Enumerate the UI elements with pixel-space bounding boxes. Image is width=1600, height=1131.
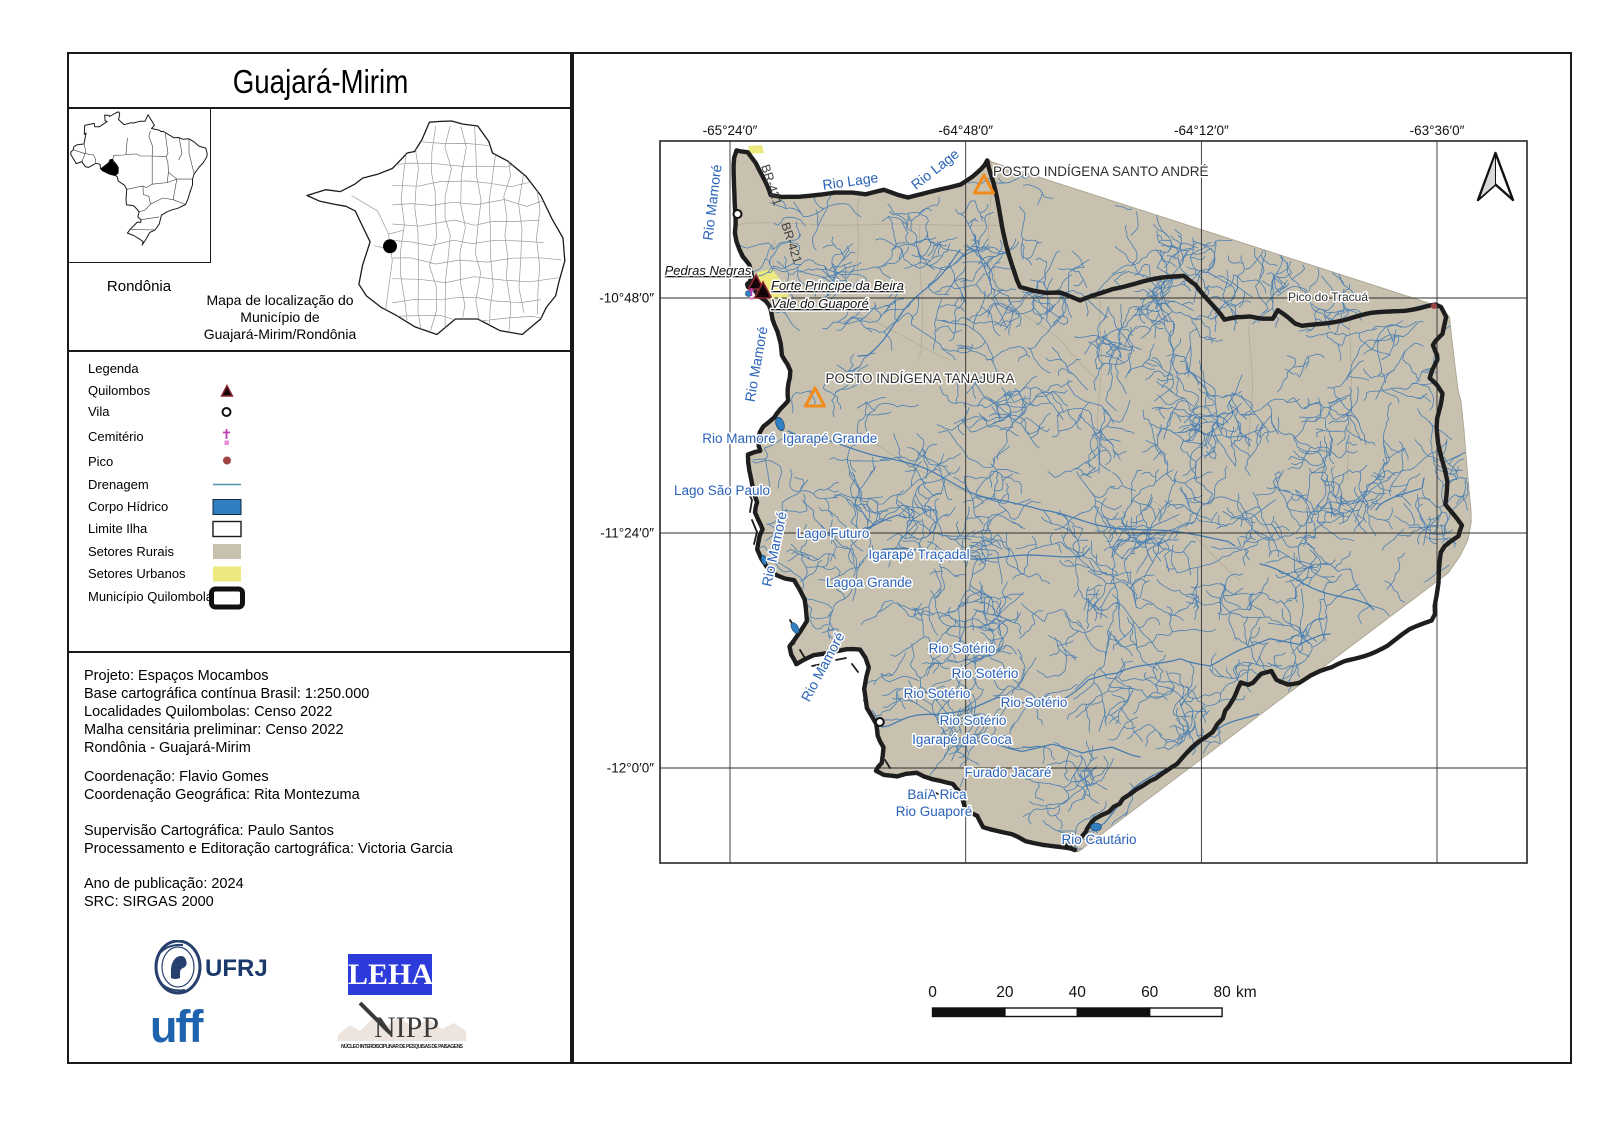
svg-text:Furado Jacaré: Furado Jacaré	[964, 765, 1051, 780]
svg-text:Pico do Tracuá: Pico do Tracuá	[1288, 290, 1368, 304]
svg-text:NÚCLEO INTERDISCIPLINAR DE PES: NÚCLEO INTERDISCIPLINAR DE PESQUISAS DE …	[341, 1043, 464, 1050]
svg-text:Igarapé Traçadal: Igarapé Traçadal	[868, 547, 969, 562]
svg-text:0: 0	[928, 984, 937, 1001]
svg-text:Rio Mamoré: Rio Mamoré	[702, 431, 776, 446]
svg-text:-63°36′0″: -63°36′0″	[1410, 123, 1465, 138]
svg-text:POSTO INDÍGENA TANAJURA: POSTO INDÍGENA TANAJURA	[825, 371, 1014, 386]
svg-text:Igarapé Grande: Igarapé Grande	[783, 431, 878, 446]
svg-text:Igarapé da Coca: Igarapé da Coca	[912, 732, 1012, 747]
svg-text:Rio Mamoré: Rio Mamoré	[699, 163, 724, 241]
svg-text:60: 60	[1141, 984, 1159, 1001]
svg-text:Rio Sotério: Rio Sotério	[929, 641, 996, 656]
svg-text:20: 20	[996, 984, 1014, 1001]
svg-text:Forte Principe da Beira: Forte Principe da Beira	[771, 278, 904, 293]
svg-text:Lagoa Grande: Lagoa Grande	[826, 575, 912, 590]
svg-text:BaíA Rica: BaíA Rica	[907, 787, 967, 802]
svg-text:-11°24′0″: -11°24′0″	[600, 526, 654, 541]
svg-text:Rio Sotério: Rio Sotério	[1001, 695, 1068, 710]
svg-text:POSTO INDÍGENA SANTO ANDRÉ: POSTO INDÍGENA SANTO ANDRÉ	[993, 164, 1209, 179]
svg-text:NIPP: NIPP	[374, 1011, 439, 1044]
svg-text:80: 80	[1213, 984, 1231, 1001]
svg-text:Rio Sotério: Rio Sotério	[904, 686, 971, 701]
svg-text:40: 40	[1069, 984, 1087, 1001]
svg-text:Rio Guaporé: Rio Guaporé	[896, 804, 973, 819]
svg-text:UFRJ: UFRJ	[205, 955, 268, 982]
svg-text:Lago São Paulo: Lago São Paulo	[674, 483, 770, 498]
svg-text:Rio Sotério: Rio Sotério	[952, 666, 1019, 681]
svg-text:km: km	[1236, 984, 1257, 1001]
svg-text:Rio Cautário: Rio Cautário	[1061, 832, 1136, 847]
svg-text:Lago Futuro: Lago Futuro	[797, 526, 870, 541]
svg-text:Vale do Guaporé: Vale do Guaporé	[771, 296, 869, 311]
svg-text:-64°12′0″: -64°12′0″	[1174, 123, 1229, 138]
svg-text:Pedras Negras: Pedras Negras	[665, 263, 752, 278]
svg-text:Rio Mamoré: Rio Mamoré	[742, 325, 771, 403]
svg-text:Rio Lage: Rio Lage	[821, 169, 879, 193]
svg-text:Rio Sotério: Rio Sotério	[940, 713, 1007, 728]
svg-text:-65°24′0″: -65°24′0″	[703, 123, 758, 138]
svg-text:-64°48′0″: -64°48′0″	[938, 123, 993, 138]
svg-text:-12°0′0″: -12°0′0″	[607, 761, 654, 776]
svg-text:-10°48′0″: -10°48′0″	[599, 291, 654, 306]
